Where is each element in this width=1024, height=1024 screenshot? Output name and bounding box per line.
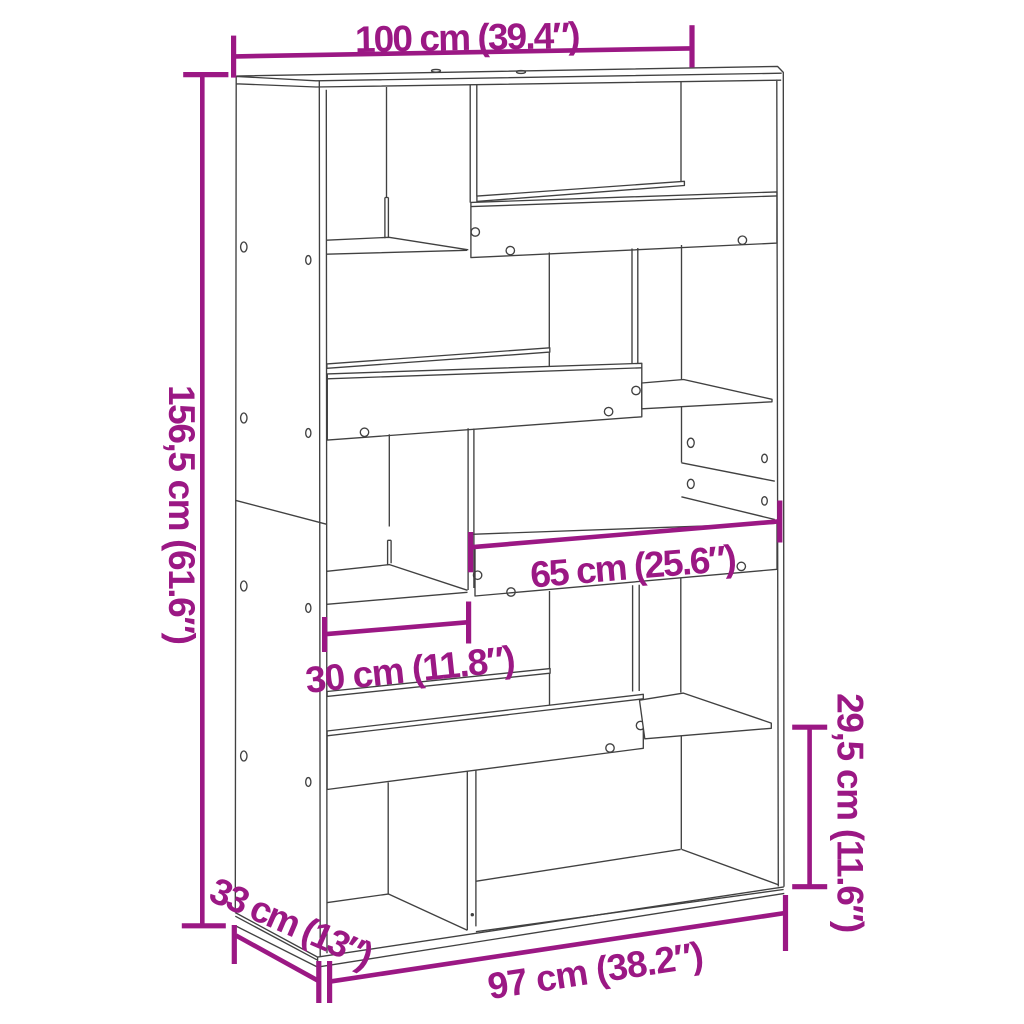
svg-text:29,5 cm (11.6″): 29,5 cm (11.6″) xyxy=(830,693,871,932)
svg-text:156,5 cm (61.6″): 156,5 cm (61.6″) xyxy=(161,385,202,644)
svg-text:100 cm (39.4″): 100 cm (39.4″) xyxy=(355,15,580,60)
